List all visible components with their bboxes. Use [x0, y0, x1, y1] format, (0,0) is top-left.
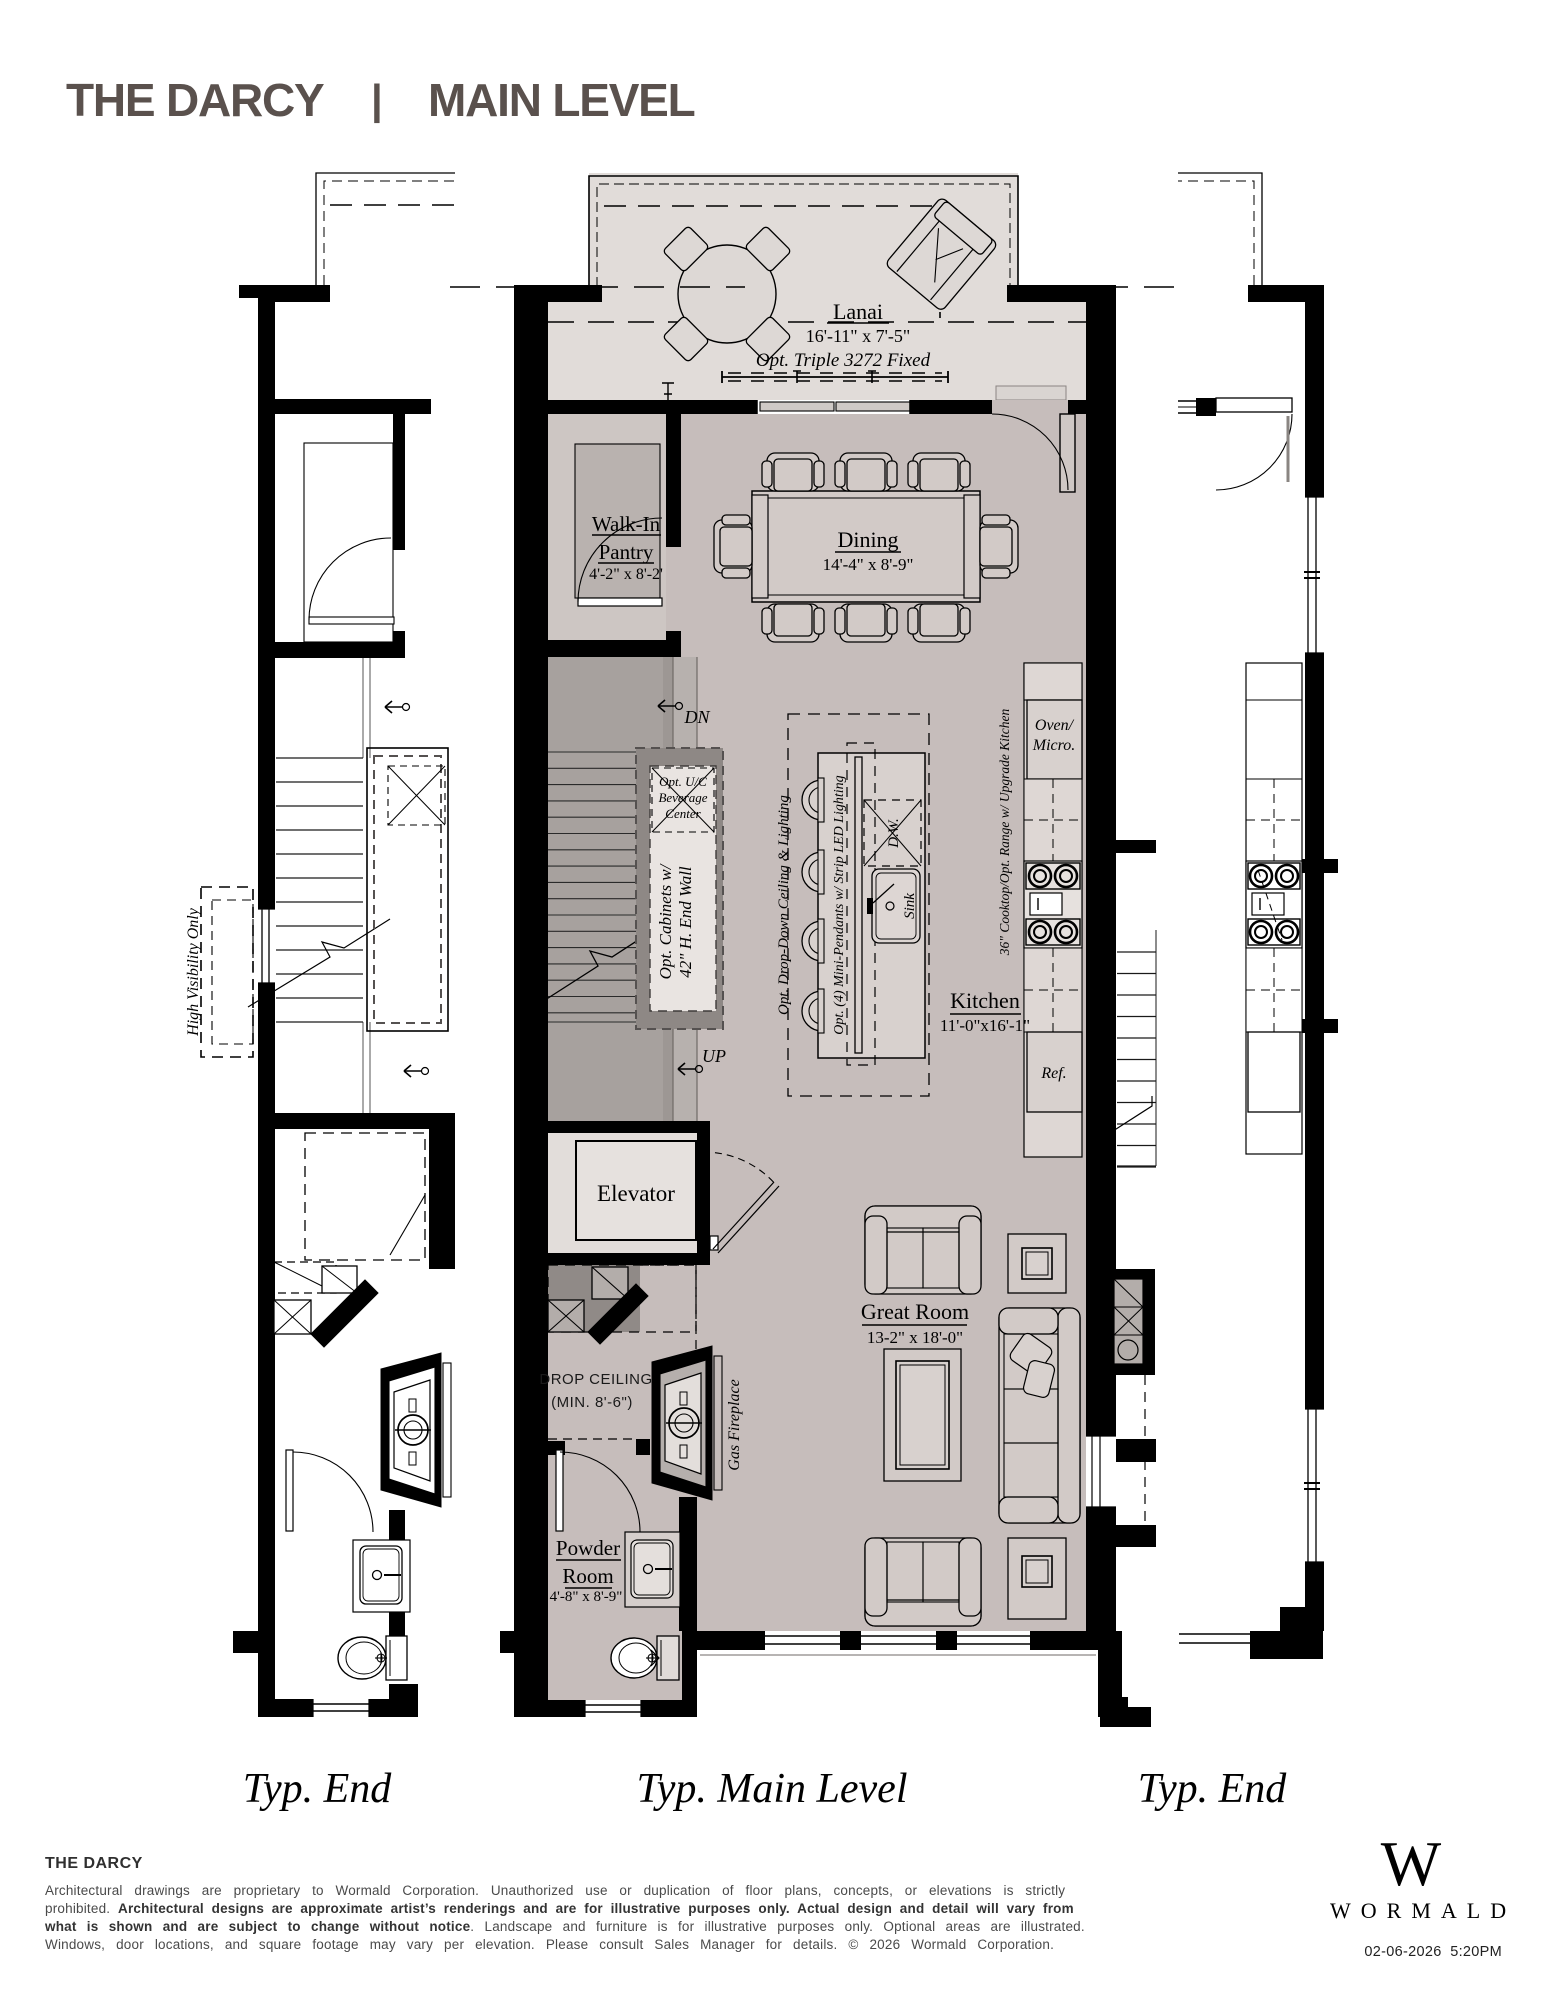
svg-text:16'-11" x 7'-5": 16'-11" x 7'-5": [806, 326, 911, 346]
svg-text:Elevator: Elevator: [597, 1181, 675, 1206]
svg-text:13-2" x 18'-0": 13-2" x 18'-0": [867, 1328, 963, 1347]
svg-text:Oven/: Oven/: [1035, 717, 1075, 734]
svg-text:Walk-In: Walk-In: [592, 512, 661, 536]
svg-text:14'-4" x 8'-9": 14'-4" x 8'-9": [823, 555, 914, 574]
svg-text:(MIN. 8'-6"): (MIN. 8'-6"): [551, 1394, 633, 1411]
svg-text:42" H. End Wall: 42" H. End Wall: [676, 866, 695, 978]
svg-text:Beverage: Beverage: [658, 790, 707, 805]
svg-text:|: |: [371, 76, 383, 124]
svg-text:Micro.: Micro.: [1032, 737, 1076, 754]
svg-text:Opt. Triple 3272 Fixed: Opt. Triple 3272 Fixed: [756, 350, 931, 371]
svg-text:Opt. Drop-Down Ceiling & Light: Opt. Drop-Down Ceiling & Lighting: [776, 795, 792, 1015]
svg-text:36" Cooktop/Opt. Range w/ Upgr: 36" Cooktop/Opt. Range w/ Upgrade Kitche…: [997, 709, 1012, 957]
svg-text:Opt. Cabinets w/: Opt. Cabinets w/: [656, 862, 675, 979]
svg-text:Typ. End: Typ. End: [1138, 1766, 1288, 1812]
svg-text:Typ. End: Typ. End: [243, 1766, 393, 1812]
svg-text:Lanai: Lanai: [833, 299, 883, 324]
svg-text:MAIN LEVEL: MAIN LEVEL: [428, 74, 695, 126]
svg-text:Gas Fireplace: Gas Fireplace: [726, 1379, 743, 1470]
svg-text:Ref.: Ref.: [1040, 1065, 1066, 1082]
svg-text:High Visibility Only: High Visibility Only: [185, 907, 202, 1037]
svg-text:Great Room: Great Room: [861, 1299, 969, 1324]
svg-text:THE DARCY: THE DARCY: [66, 74, 324, 126]
svg-text:Pantry: Pantry: [599, 540, 654, 564]
svg-text:UP: UP: [702, 1046, 726, 1066]
svg-text:4'-8" x 8'-9": 4'-8" x 8'-9": [550, 1589, 623, 1605]
svg-text:Sink: Sink: [902, 893, 918, 919]
svg-text:DN: DN: [683, 707, 710, 727]
svg-text:Kitchen: Kitchen: [950, 988, 1020, 1013]
svg-text:Center: Center: [665, 806, 701, 821]
svg-text:Opt. U/C: Opt. U/C: [659, 774, 707, 789]
svg-text:Powder: Powder: [556, 1536, 620, 1560]
svg-text:11'-0"x16'-1": 11'-0"x16'-1": [940, 1016, 1030, 1035]
svg-text:Opt. (4) Mini-Pendants w/ Stri: Opt. (4) Mini-Pendants w/ Strip LED Ligh…: [832, 775, 847, 1034]
svg-text:4'-2" x 8'-2': 4'-2" x 8'-2': [589, 566, 663, 583]
svg-text:D.W.: D.W.: [886, 818, 902, 848]
svg-text:Room: Room: [562, 1564, 613, 1588]
svg-text:Dining: Dining: [837, 527, 898, 552]
svg-text:Typ. Main Level: Typ. Main Level: [637, 1766, 908, 1812]
svg-text:DROP CEILING: DROP CEILING: [539, 1371, 652, 1388]
